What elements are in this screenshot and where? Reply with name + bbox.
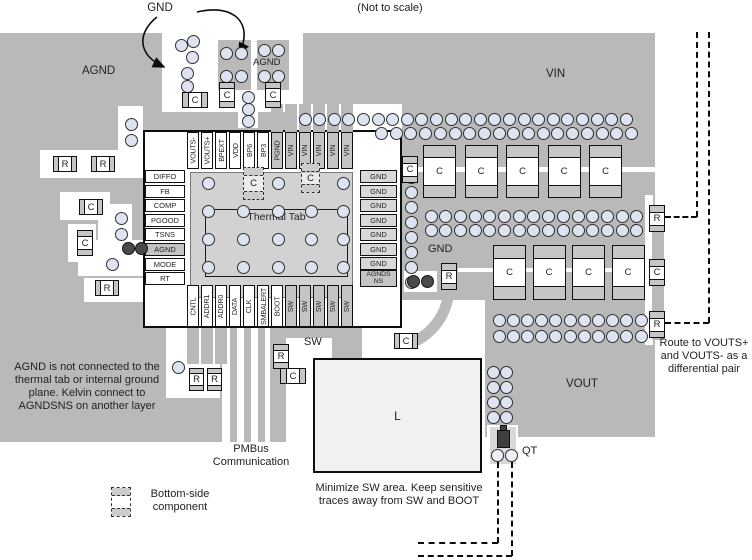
not-to-scale-label: (Not to scale) (330, 2, 450, 15)
via (187, 35, 200, 48)
capacitor: C (548, 145, 581, 198)
pin-vin: VIN (341, 132, 353, 169)
via (175, 39, 188, 52)
via (242, 103, 255, 116)
via (547, 113, 560, 126)
pin-agndsns: AGNDSNS (360, 270, 397, 287)
pin-gnd: GND (360, 185, 397, 198)
capacitor: C (402, 156, 418, 183)
route-note: Route to VOUTS+ and VOUTS- as a differen… (652, 337, 752, 376)
component-end (112, 508, 130, 516)
via (186, 51, 199, 64)
via (566, 127, 579, 140)
pin-sw: SW (313, 285, 325, 327)
via (507, 314, 520, 327)
resistor: R (273, 344, 289, 369)
via (557, 224, 570, 237)
via (532, 113, 545, 126)
via (578, 330, 591, 343)
via (557, 210, 570, 223)
pin-vin: VIN (327, 132, 339, 169)
resistor: R (91, 156, 115, 172)
via (591, 113, 604, 126)
via (620, 314, 633, 327)
via (459, 113, 472, 126)
via (305, 233, 318, 246)
via (586, 210, 599, 223)
capacitor: C (77, 230, 93, 256)
via (503, 113, 516, 126)
via (487, 396, 500, 409)
via (272, 177, 285, 190)
pin-trace (215, 328, 227, 364)
via (469, 224, 482, 237)
pmbus-trace (244, 328, 251, 442)
via (500, 381, 513, 394)
gnd-area-label: GND (428, 243, 452, 256)
via (181, 67, 194, 80)
via (337, 205, 350, 218)
pin-bp3: BP3 (257, 132, 269, 169)
via (258, 44, 271, 57)
capacitor: C (280, 368, 306, 384)
capacitor: C (394, 333, 418, 349)
via (483, 210, 496, 223)
pin-gnd: GND (360, 228, 397, 241)
via (498, 210, 511, 223)
pin-vin: VIN (285, 132, 297, 169)
via (537, 127, 550, 140)
via (439, 210, 452, 223)
via (106, 258, 119, 271)
via (235, 70, 248, 83)
via (487, 366, 500, 379)
pin-gnd: GND (360, 199, 397, 212)
routing-dashed-line (665, 322, 709, 324)
component-end (112, 488, 130, 496)
via (434, 127, 447, 140)
via (493, 314, 506, 327)
resistor: R (53, 156, 77, 172)
qt-transistor-body (497, 430, 510, 448)
via (375, 127, 388, 140)
via (272, 70, 285, 83)
pmbus-note: PMBus Communication (203, 443, 299, 469)
pin-comp: COMP (145, 199, 185, 212)
routing-dashed-line (497, 462, 499, 543)
capacitor: C (79, 199, 103, 215)
via (581, 127, 594, 140)
via (172, 361, 185, 374)
via (483, 224, 496, 237)
via (572, 210, 585, 223)
via (220, 47, 233, 60)
agnd-plane-label: AGND (82, 65, 115, 78)
via (620, 330, 633, 343)
pin-gnd: GND (360, 170, 397, 183)
pin-mode: MODE (145, 258, 185, 271)
pin-gnd: GND (360, 214, 397, 227)
gnd-callout-label: GND (138, 2, 182, 15)
via (419, 127, 432, 140)
capacitor: C (572, 245, 605, 300)
via (454, 224, 467, 237)
via (405, 216, 418, 229)
via (272, 233, 285, 246)
sw-note: Minimize SW area. Keep sensitive traces … (306, 482, 492, 508)
via (493, 127, 506, 140)
via (535, 314, 548, 327)
via (596, 127, 609, 140)
via (272, 205, 285, 218)
via (487, 411, 500, 424)
via (513, 210, 526, 223)
pin-vouts+: VOUTS+ (201, 132, 213, 169)
via (601, 210, 614, 223)
via (181, 80, 194, 93)
vin-pin-trace (285, 104, 297, 133)
pin-agnd: AGND (145, 243, 185, 256)
via (401, 113, 414, 126)
via (474, 113, 487, 126)
via (606, 314, 619, 327)
via (521, 314, 534, 327)
via (386, 113, 399, 126)
pin-sw: SW (341, 285, 353, 327)
via (513, 224, 526, 237)
via (527, 210, 540, 223)
agnd-pad-label: AGND (253, 56, 280, 69)
vin-plane-label: VIN (546, 68, 565, 81)
via (272, 44, 285, 57)
dark-via (421, 275, 434, 288)
via (625, 127, 638, 140)
via (518, 113, 531, 126)
capacitor: C (612, 245, 645, 300)
via (542, 224, 555, 237)
via (425, 224, 438, 237)
vin-pin-trace (271, 104, 283, 133)
via (405, 246, 418, 259)
via (605, 113, 618, 126)
dark-via (407, 275, 420, 288)
pin-diffo: DIFFO (145, 170, 185, 183)
routing-dashed-line (696, 32, 698, 217)
via (635, 314, 648, 327)
pin-trace (201, 328, 213, 364)
via (564, 314, 577, 327)
routing-dashed-line (665, 216, 697, 218)
inductor: L (313, 358, 482, 473)
qt-pad-via (491, 449, 504, 462)
pin-fb: FB (145, 185, 185, 198)
via (500, 366, 513, 379)
bottom-side-component-symbol (111, 487, 131, 517)
via (390, 127, 403, 140)
via (445, 113, 458, 126)
via (592, 330, 605, 343)
pin-data: DATA (229, 285, 241, 327)
bottom-side-capacitor: C (243, 167, 264, 200)
resistor: R (207, 368, 222, 391)
via (372, 113, 385, 126)
via (405, 231, 418, 244)
capacitor: C (182, 92, 208, 108)
via (237, 233, 250, 246)
capacitor: C (265, 82, 281, 108)
via (405, 201, 418, 214)
bottom-side-capacitor: C (301, 163, 320, 193)
resistor: R (649, 311, 665, 338)
via (405, 261, 418, 274)
pin-trace (187, 328, 199, 364)
capacitor: C (423, 145, 456, 198)
pin-cntl: CNTL (187, 285, 199, 327)
via (564, 330, 577, 343)
via (576, 113, 589, 126)
pin-gnd: GND (360, 243, 397, 256)
via (430, 113, 443, 126)
via (616, 210, 629, 223)
via (425, 210, 438, 223)
via (439, 224, 452, 237)
legend-label: Bottom-side component (134, 488, 226, 514)
via (202, 261, 215, 274)
routing-dashed-line (511, 462, 513, 556)
via (549, 330, 562, 343)
pin-bp6: BP6 (243, 132, 255, 169)
qt-label: QT (522, 445, 537, 458)
via (202, 205, 215, 218)
via (635, 330, 648, 343)
via (449, 127, 462, 140)
via (125, 118, 138, 131)
via (493, 330, 506, 343)
via (237, 205, 250, 218)
pin-clk: CLK (243, 285, 255, 327)
via (527, 224, 540, 237)
vout-plane-label: VOUT (566, 378, 598, 391)
via (258, 70, 271, 83)
pmbus-trace (230, 328, 237, 442)
pin-tsns: TSNS (145, 228, 185, 241)
pin-pgood: PGOOD (145, 214, 185, 227)
via (242, 115, 255, 128)
resistor: R (95, 280, 119, 296)
pin-vdd: VDD (229, 132, 241, 169)
via (487, 381, 500, 394)
pin-vouts-: VOUTS- (187, 132, 199, 169)
dark-via (122, 242, 135, 255)
routing-dashed-line (418, 555, 512, 557)
pin-gnd: GND (360, 257, 397, 270)
sw-trace (332, 328, 362, 359)
via (500, 396, 513, 409)
via (125, 134, 138, 147)
inductor-label: L (394, 409, 401, 423)
agnd-note: AGND is not connected to the thermal tab… (8, 361, 166, 413)
pin-addr0: ADDR0 (215, 285, 227, 327)
via (202, 233, 215, 246)
via (115, 212, 128, 225)
pin-sw: SW (327, 285, 339, 327)
routing-dashed-line (708, 32, 710, 323)
resistor: R (189, 368, 204, 391)
via (592, 314, 605, 327)
via (521, 330, 534, 343)
via (549, 314, 562, 327)
pin-addr1: ADDR1 (201, 285, 213, 327)
via (235, 47, 248, 60)
capacitor: C (589, 145, 622, 198)
via (299, 113, 312, 126)
qt-pad-via (505, 449, 518, 462)
capacitor: C (219, 82, 235, 108)
routing-dashed-line (418, 542, 498, 544)
via (357, 113, 370, 126)
pin-pgnd: PGND (271, 132, 283, 169)
pin-bpext: BPEXT (215, 132, 227, 169)
via (616, 224, 629, 237)
sw-area-label: SW (304, 336, 322, 349)
via (606, 330, 619, 343)
resistor: R (441, 263, 457, 290)
resistor: R (649, 205, 665, 232)
pin-smbalert: SMBALERT (257, 285, 269, 327)
pin-boot: BOOT (271, 285, 283, 327)
via (630, 224, 643, 237)
dark-via (135, 242, 148, 255)
via (578, 314, 591, 327)
via (454, 210, 467, 223)
pin-rt: RT (145, 272, 185, 285)
via (535, 330, 548, 343)
via (522, 127, 535, 140)
pin-sw: SW (299, 285, 311, 327)
via (313, 113, 326, 126)
via (202, 177, 215, 190)
via (630, 210, 643, 223)
via (500, 411, 513, 424)
via (115, 228, 128, 241)
via (478, 127, 491, 140)
capacitor: C (533, 245, 566, 300)
pmbus-trace (258, 328, 265, 442)
capacitor: C (649, 259, 665, 286)
via (305, 205, 318, 218)
via (542, 210, 555, 223)
via (337, 261, 350, 274)
via (237, 261, 250, 274)
capacitor: C (506, 145, 539, 198)
via (572, 224, 585, 237)
pin-sw: SW (285, 285, 297, 327)
via (469, 210, 482, 223)
via (272, 261, 285, 274)
via (507, 330, 520, 343)
via (620, 113, 633, 126)
via (305, 261, 318, 274)
via (337, 177, 350, 190)
via (337, 233, 350, 246)
via (586, 224, 599, 237)
capacitor: C (493, 245, 526, 300)
via (498, 224, 511, 237)
via (405, 186, 418, 199)
capacitor: C (465, 145, 498, 198)
pcb-layout-diagram: Thermal Tab L GND (Not to scale) AGND AG… (0, 0, 752, 560)
via (242, 91, 255, 104)
via (220, 70, 233, 83)
via (328, 113, 341, 126)
via (601, 224, 614, 237)
